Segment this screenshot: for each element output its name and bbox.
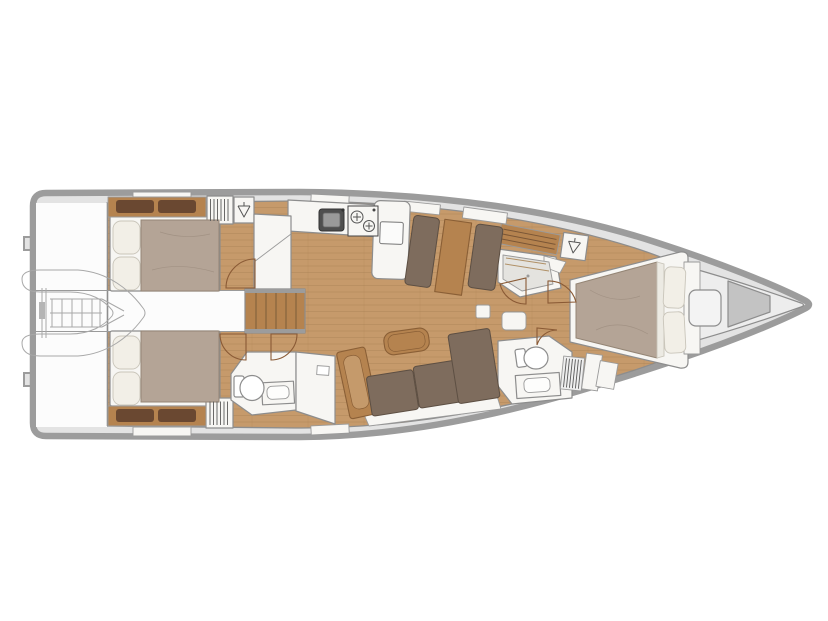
table-pedestal-base [476, 305, 490, 318]
pillow [113, 336, 140, 369]
pillow [113, 372, 140, 405]
heads-side-cabinet [596, 361, 618, 390]
day-heads-locker [296, 352, 335, 424]
deck-locker [311, 424, 349, 435]
center-passage [36, 290, 245, 332]
toilet-bowl [524, 347, 548, 369]
headboard-pad [116, 200, 154, 213]
stove-knob [373, 209, 376, 212]
locker-latch [317, 366, 330, 376]
pillow [113, 257, 140, 290]
pillow [663, 267, 686, 309]
peninsula-sink [380, 222, 404, 245]
deck-locker [133, 427, 191, 436]
headboard-pad [158, 200, 196, 213]
headboard-pad [158, 409, 196, 422]
hanging-locker [234, 197, 254, 223]
galley-stove [348, 206, 378, 236]
toilet-bowl [240, 376, 264, 401]
tender-motor [39, 302, 45, 319]
owners-sheet-fold [657, 262, 664, 358]
day-heads-basin [267, 385, 290, 399]
floor-plan-canvas [0, 0, 828, 621]
shower-drain [527, 275, 530, 278]
pillow [113, 221, 140, 254]
galley-sink [319, 208, 345, 231]
owners-heads-toilet [515, 347, 548, 369]
sofa-cushion [366, 369, 419, 416]
headboard-pad [116, 409, 154, 422]
owners-heads-basin [524, 377, 551, 393]
owners-heads-louver [560, 356, 584, 391]
faucet-dot [341, 208, 344, 211]
stair-edge-top [245, 289, 305, 293]
bow-deck-hatch [689, 290, 721, 326]
sink-basin-inner [323, 213, 340, 227]
stair-edge-bottom [245, 329, 305, 333]
hanging-locker-forward [560, 232, 588, 260]
day-heads-toilet [234, 376, 264, 401]
yacht-floor-plan [0, 0, 828, 621]
starboard-aft-duvet [141, 220, 219, 291]
companionway-stairs [245, 289, 305, 333]
heads-top-unit [502, 312, 526, 330]
port-aft-duvet [141, 331, 219, 402]
pillow [663, 311, 686, 353]
